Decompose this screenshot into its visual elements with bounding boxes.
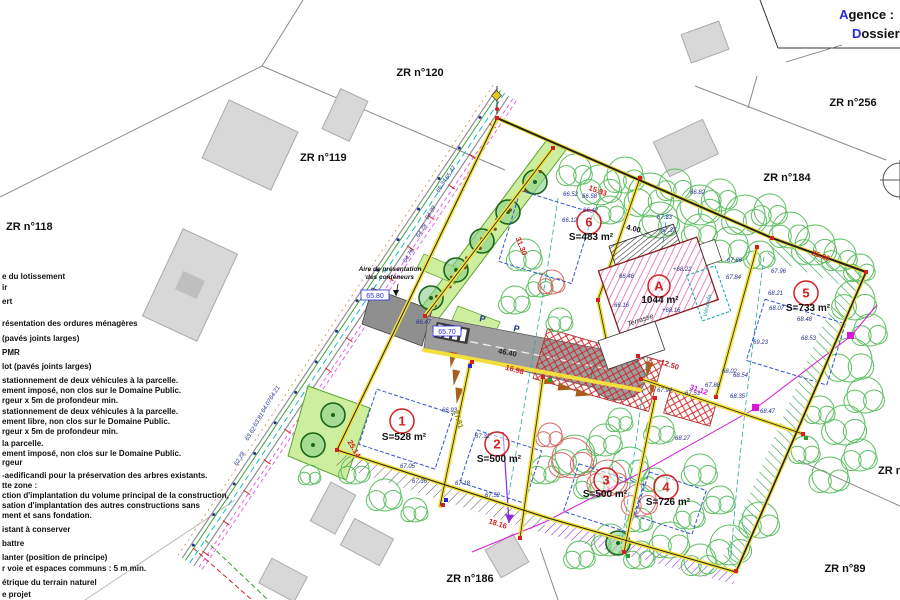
tree-icon <box>701 179 737 211</box>
legend-item: istant à conserver <box>2 525 70 534</box>
existing-building <box>341 518 394 565</box>
existing-building <box>653 119 718 176</box>
legend-item: ert <box>2 297 13 306</box>
legend-item: lanter (position de principe) <box>2 553 108 562</box>
existing-building <box>485 534 529 578</box>
tree-icon <box>606 408 633 432</box>
level-label: 67.37 <box>661 228 677 234</box>
legend-item: sation d'implantation des autres constru… <box>2 501 200 510</box>
road-level-label: 64.21 <box>269 385 282 401</box>
level-label: 68.47 <box>760 409 776 415</box>
legend-item: rgeur <box>2 458 22 467</box>
corner-marker <box>638 176 642 180</box>
title-block: Agence : Dossier <box>760 0 900 62</box>
legend-item: ir <box>2 283 7 292</box>
legend-item: ement imposé, non clos sur le Domaine Pu… <box>2 386 181 395</box>
corner-marker <box>622 550 626 554</box>
lot-number: 5 <box>802 286 809 301</box>
corner-marker <box>518 536 522 540</box>
containers-label-2: des conteneurs <box>366 274 414 281</box>
parcel-label: ZR n°120 <box>396 67 443 79</box>
legend-item: rgeur x 5m de profondeur min. <box>2 427 118 436</box>
lot-area: 1044 m² <box>641 295 679 306</box>
tree-icon <box>499 286 531 314</box>
parcel-label: ZR n°184 <box>763 172 811 184</box>
level-label: 67.32 <box>475 434 491 440</box>
level-label: 67.36 <box>412 479 428 485</box>
level-label: +68.22 <box>673 267 692 273</box>
parcel-label: ZR n°186 <box>446 573 493 585</box>
street-tick <box>223 521 230 525</box>
level-label: 67.05 <box>400 464 416 470</box>
legend-item: stationnement de deux véhicules à la par… <box>2 407 178 416</box>
corner-marker <box>541 375 545 379</box>
legend-item: PMR <box>2 348 20 357</box>
tree-icon <box>624 173 674 217</box>
level-label: 67.94 <box>657 388 673 394</box>
road-level-label: 65.47 <box>445 165 458 181</box>
corner-marker <box>423 314 427 318</box>
level-label: 68.54 <box>733 373 749 379</box>
road-level-label: 63.81 <box>253 412 266 428</box>
level-label: 66.46 <box>619 274 635 280</box>
containers-label-1: Aire de présentation <box>358 266 422 273</box>
lot-number: 2 <box>493 437 500 452</box>
legend-item: tte zone : <box>2 481 37 490</box>
planted-tree-icon <box>301 433 325 457</box>
legend-item: (pavés joints larges) <box>2 334 80 343</box>
lot-number: A <box>654 279 664 294</box>
corner-marker <box>864 270 868 274</box>
lot-area: S=726 m² <box>646 497 691 508</box>
boxed-level-label: 65.80 <box>366 293 384 300</box>
legend-item: stationnement de deux véhicules à la par… <box>2 376 178 385</box>
corner-marker <box>639 377 643 381</box>
level-label: 67.84 <box>726 275 742 281</box>
street-tick <box>325 368 332 372</box>
corner-marker <box>734 569 738 573</box>
corner-marker <box>714 395 718 399</box>
tree-icon <box>546 308 573 332</box>
planted-tree-icon <box>321 403 345 427</box>
hedge-dot <box>524 189 527 192</box>
lot-number: 4 <box>662 480 670 495</box>
legend-item: ement libre, non clos sur le Domaine Pub… <box>2 417 170 426</box>
legend-item: battre <box>2 539 25 548</box>
tree-icon <box>681 454 717 486</box>
talus-triangle <box>450 369 461 386</box>
level-label: 68.48 <box>797 317 813 323</box>
tree-icon <box>298 465 321 485</box>
corner-marker <box>335 448 339 452</box>
corner-marker <box>548 378 552 382</box>
lot-number: 1 <box>398 414 405 429</box>
level-label: 66.12 <box>562 218 578 224</box>
corner-marker <box>770 236 774 240</box>
level-label: +68.16 <box>662 308 681 314</box>
corner-marker <box>441 503 445 507</box>
level-label: 67.18 <box>455 481 471 487</box>
lot-number: 6 <box>585 215 592 230</box>
dimension-label: 12.50 <box>659 357 680 371</box>
level-label: 67.33 <box>657 215 673 221</box>
corner-marker <box>626 554 630 558</box>
level-label: 66.42 <box>583 208 599 214</box>
corner-marker <box>551 146 555 150</box>
legend-item: ment et sans fondation. <box>2 511 92 520</box>
road-level-label: 64.28 <box>416 223 429 239</box>
lot-area: S=500 m² <box>477 454 522 465</box>
compass-circle <box>880 160 900 200</box>
boxed-level-label: 65.70 <box>438 329 456 336</box>
level-label: 68.21 <box>768 291 783 297</box>
corner-marker <box>804 436 808 440</box>
level-label: 66.16 <box>614 303 630 309</box>
lot-area: S=500 m² <box>583 489 628 500</box>
legend-item: e du lotissement <box>2 272 65 281</box>
corner-marker <box>653 396 657 400</box>
level-label: 68.07 <box>769 306 785 312</box>
parcel-label: ZR n°256 <box>829 97 876 109</box>
level-label: 67.52 <box>485 493 501 499</box>
agence-label: Agence : <box>839 7 894 22</box>
legend-item: r voie et espaces communs : 5 m min. <box>2 564 146 573</box>
road-level-label: 64.39 <box>425 205 438 221</box>
corner-marker <box>468 364 472 368</box>
corner-marker <box>444 498 448 502</box>
level-label: 68.53 <box>801 336 817 342</box>
level-label: 68.35 <box>730 394 746 400</box>
legend-item: ction d'implantation du volume principal… <box>2 491 229 500</box>
lot-area: S=733 m² <box>786 303 831 314</box>
corner-marker <box>495 116 499 120</box>
corner-marker <box>636 354 640 358</box>
level-label: 66.58 <box>582 194 598 200</box>
tree-icon <box>564 541 596 569</box>
legend-item: lot (pavés joints larges) <box>2 362 92 371</box>
tree-icon <box>401 498 428 522</box>
legend-item: étrique du terrain naturel <box>2 578 97 587</box>
tree-icon <box>536 423 563 447</box>
dimension-label: 27.81 <box>451 409 465 430</box>
hedge-dot <box>539 170 542 173</box>
lot-number: 3 <box>602 473 609 488</box>
existing-building <box>322 89 368 142</box>
existing-building <box>259 558 307 600</box>
lot-area: S=528 m² <box>382 432 427 443</box>
parcel-label: ZR n°89 <box>824 563 865 575</box>
level-label: 66.82 <box>690 190 706 196</box>
hedge-dot <box>509 208 512 211</box>
existing-building <box>681 21 729 63</box>
level-label: 69.23 <box>753 340 769 346</box>
legend-item: ement imposé, non clos sur le Domaine Pu… <box>2 449 181 458</box>
level-label: 67.86 <box>727 258 743 264</box>
legend-item: la parcelle. <box>2 439 43 448</box>
existing-building <box>202 100 298 190</box>
existing-building <box>310 482 355 534</box>
level-label: 66.47 <box>416 320 432 326</box>
legend-item: -aedificandi pour la préservation des ar… <box>2 471 207 480</box>
parking-label: P <box>513 323 521 334</box>
tree-icon <box>841 439 877 471</box>
parcel-label: ZR n <box>878 465 900 477</box>
street-tick <box>243 490 250 494</box>
tree-icon <box>722 195 767 235</box>
road-level-label: 64.76 <box>403 248 416 264</box>
parcel-label: ZR n°118 <box>6 221 53 233</box>
tree-icon <box>704 486 736 514</box>
level-label: 67.96 <box>771 269 787 275</box>
corner-marker <box>470 360 474 364</box>
corner-marker <box>801 432 805 436</box>
corner-marker <box>755 245 759 249</box>
level-label: 66.52 <box>563 192 579 198</box>
tree-icon <box>366 479 402 511</box>
legend-item: e projet <box>2 590 31 599</box>
dossier-label: Dossier <box>852 26 900 41</box>
site-plan-svg: Terrasse Véranda ZR n°120ZR n°119ZR n°11… <box>0 0 900 600</box>
parcel-label: ZR n°119 <box>300 152 347 164</box>
legend-item: rgeur x 5m de profondeur min. <box>2 396 118 405</box>
lot-area: S=483 m² <box>569 232 614 243</box>
legend-item: résentation des ordures ménagères <box>2 319 138 328</box>
level-label: 68.27 <box>675 436 691 442</box>
tree-icon <box>809 457 850 493</box>
corner-marker <box>596 298 600 302</box>
